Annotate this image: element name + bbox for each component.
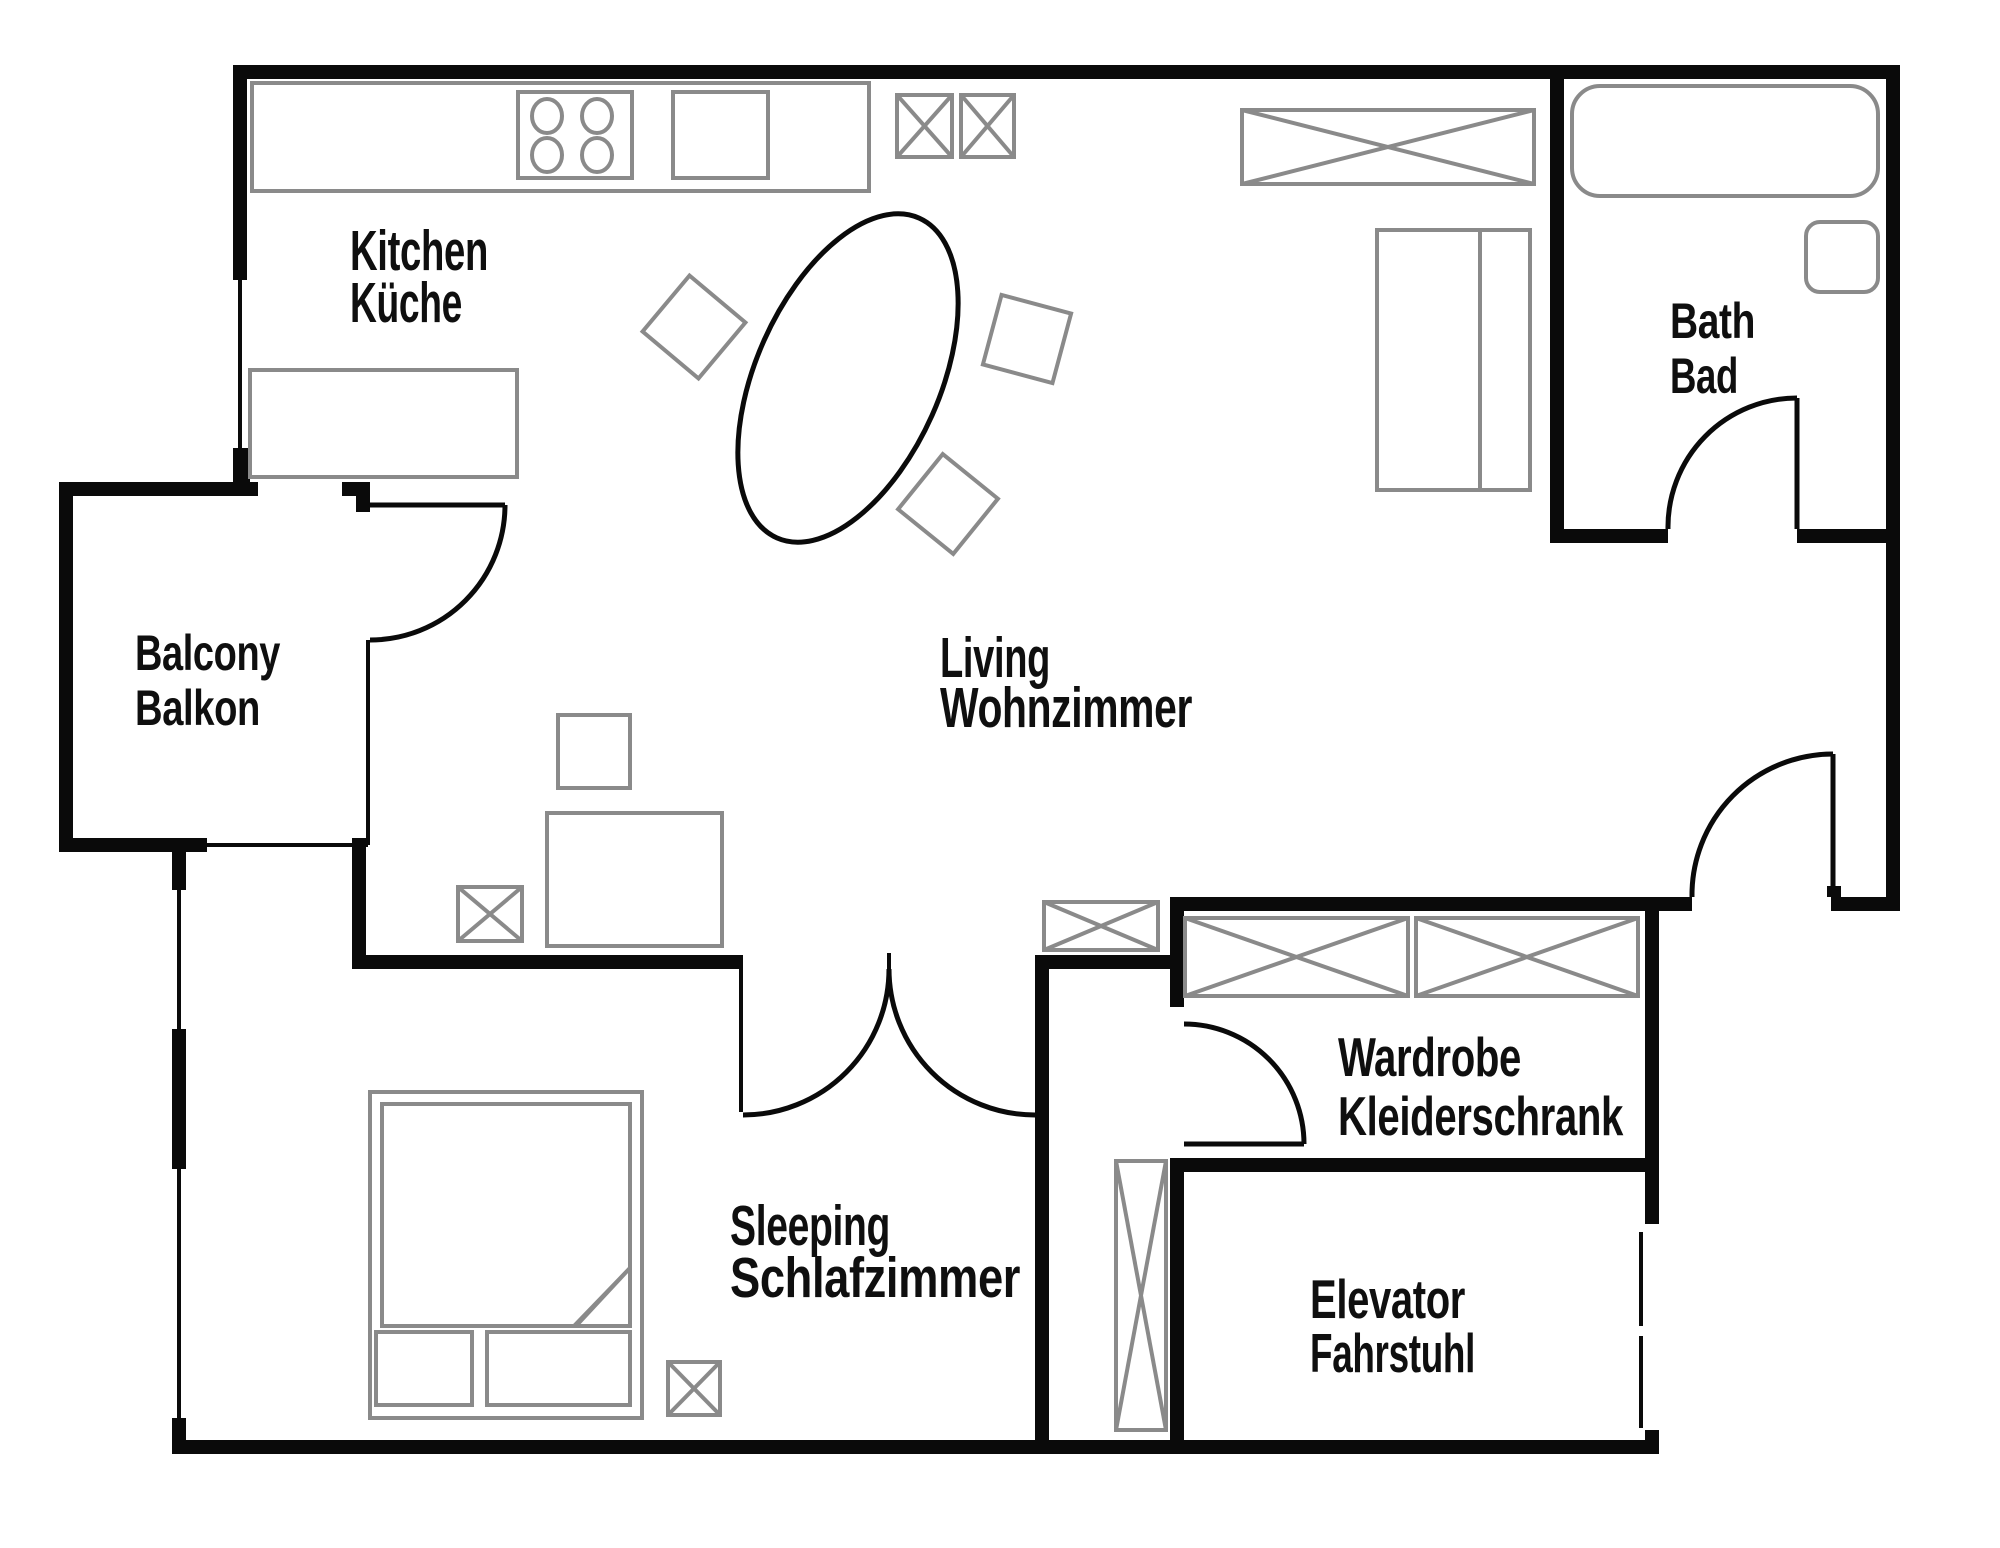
wall-hall-right <box>1831 897 1900 911</box>
sleeping-door-arc-right <box>889 969 1035 1115</box>
label-bath-de: Bad <box>1670 348 1738 404</box>
wall-west-top <box>172 845 186 890</box>
furniture <box>250 83 1878 1430</box>
entrance-door-arc <box>1692 754 1833 897</box>
wall-top <box>233 65 1900 79</box>
desk-chair-square <box>558 715 630 788</box>
bed-drawer-2 <box>487 1332 630 1405</box>
floor-plan-page: Kitchen Küche Living Wohnzimmer Bath Bad… <box>0 0 2000 1548</box>
wall-balcony-top <box>59 482 258 496</box>
wall-balcony-corner-down <box>352 838 366 969</box>
wall-right <box>1886 65 1900 911</box>
ventilation-x-box-small-2 <box>961 95 1014 157</box>
wardrobe-door-arc <box>1184 1024 1304 1144</box>
chair-icon <box>983 295 1071 383</box>
label-wardrobe-en: Wardrobe <box>1338 1026 1521 1088</box>
sleeping-x-box <box>668 1362 720 1415</box>
label-bath-en: Bath <box>1670 293 1755 349</box>
wall-elevator-right-top <box>1645 1158 1659 1224</box>
wall-wardrobe-right <box>1645 897 1659 1172</box>
label-wardrobe-de: Kleiderschrank <box>1338 1085 1624 1147</box>
wall-bath-west <box>1550 79 1564 543</box>
wall-bath-bottom-left <box>1550 529 1668 543</box>
tall-cabinet-icon <box>1377 230 1530 490</box>
label-sleeping-de: Schlafzimmer <box>730 1246 1020 1310</box>
ventilation-x-box-small-1 <box>897 95 952 157</box>
floor-plan: Kitchen Küche Living Wohnzimmer Bath Bad… <box>0 0 2000 1548</box>
wall-bath-bottom-right <box>1797 529 1900 543</box>
living-x-box <box>1044 902 1158 950</box>
wall-wardrobe-bottom <box>1170 1158 1659 1172</box>
label-kitchen-de: Küche <box>350 271 462 335</box>
mattress <box>382 1104 630 1326</box>
bathtub-icon <box>1572 86 1878 196</box>
label-elevator-en: Elevator <box>1310 1268 1465 1330</box>
chair-icon <box>643 276 746 379</box>
wall-balcony-door-jamb-notch <box>356 493 370 512</box>
wall-sleeping-north <box>352 955 743 969</box>
chair-icon <box>898 454 998 554</box>
label-balcony-de: Balkon <box>135 680 260 736</box>
elevator-shaft-x-box <box>1116 1161 1166 1430</box>
burner-icon <box>532 138 562 172</box>
burner-icon <box>582 99 612 133</box>
wardrobe-x-box-2 <box>1416 918 1638 996</box>
label-balcony-en: Balcony <box>135 625 281 681</box>
wardrobe-x-box-1 <box>1185 918 1408 996</box>
wall-wardrobe-left <box>1170 897 1184 1007</box>
label-elevator-de: Fahrstuhl <box>1310 1322 1475 1384</box>
balcony-door-arc <box>370 505 505 640</box>
wall-living-south <box>1035 955 1184 969</box>
wall-balcony-left <box>59 482 73 852</box>
bed-drawer-1 <box>376 1332 472 1405</box>
wall-bottom <box>172 1440 1659 1454</box>
desk <box>547 813 722 946</box>
lower-counter <box>250 370 517 477</box>
wall-sleeping-east <box>1035 955 1049 1454</box>
bath-door-arc <box>1668 398 1797 529</box>
label-living-de: Wohnzimmer <box>940 676 1192 740</box>
sink-icon <box>673 92 768 178</box>
toilet-icon <box>1806 222 1878 292</box>
wall-west-mid <box>172 1029 186 1169</box>
wall-elevator-left <box>1170 1158 1184 1454</box>
closet-x-box-top-right <box>1242 110 1534 184</box>
wall-hall-left <box>1170 897 1692 911</box>
sleeping-door-arc-left <box>743 969 889 1115</box>
wall-left-upper <box>233 65 247 280</box>
wall-elevator-right-bottom <box>1645 1430 1659 1454</box>
burner-icon <box>532 99 562 133</box>
burner-icon <box>582 138 612 172</box>
desk-x-box <box>458 887 522 941</box>
